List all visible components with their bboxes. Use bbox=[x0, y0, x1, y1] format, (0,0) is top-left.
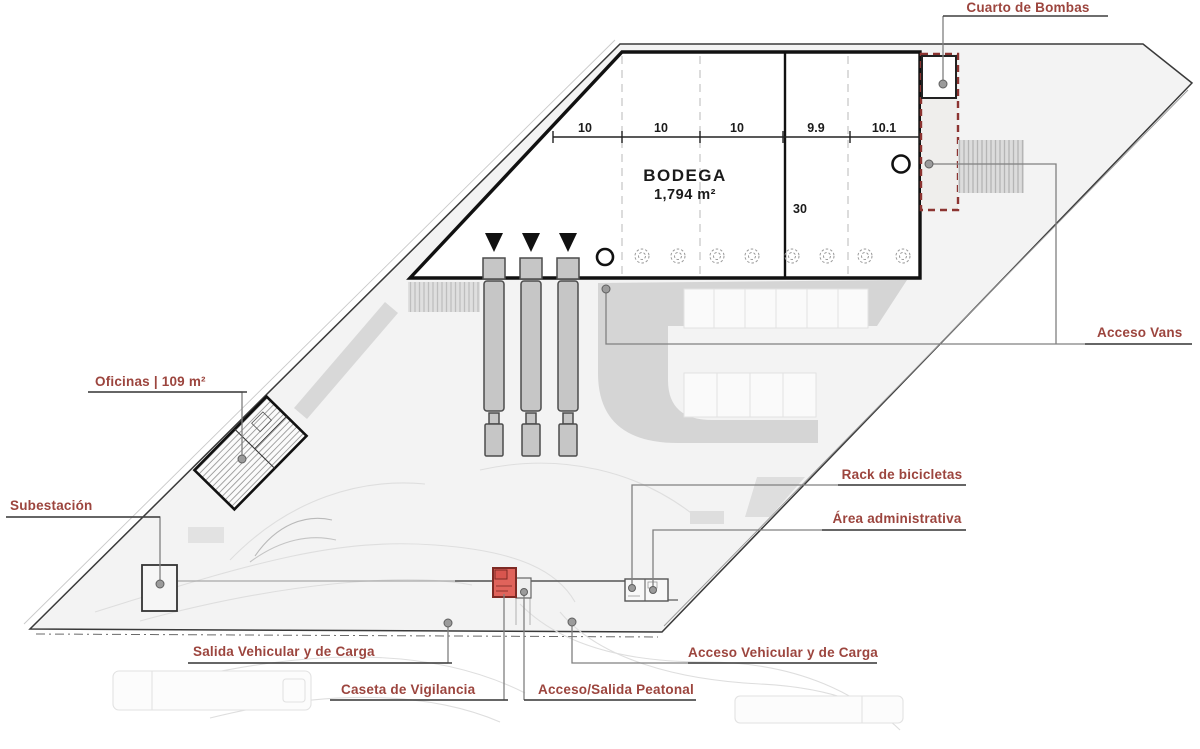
label-cuarto-de-bombas: Cuarto de Bombas bbox=[966, 0, 1089, 15]
label-salida-vehicular: Salida Vehicular y de Carga bbox=[193, 644, 375, 659]
ramp-hatch-left bbox=[408, 282, 480, 312]
label-acceso-peatonal: Acceso/Salida Peatonal bbox=[538, 682, 694, 697]
label-acceso-vans: Acceso Vans bbox=[1097, 325, 1183, 340]
warehouse-name: BODEGA bbox=[643, 166, 727, 186]
site-plan-canvas: Cuarto de Bombas Acceso Vans Oficinas | … bbox=[0, 0, 1200, 749]
warehouse-area: 1,794 m² bbox=[643, 187, 727, 203]
dim-bay-4: 9.9 bbox=[807, 121, 824, 135]
yard-patch-3 bbox=[188, 527, 224, 543]
label-rack-bicicletas: Rack de bicicletas bbox=[842, 467, 963, 482]
truck-outline-right bbox=[735, 696, 903, 723]
dim-bay-2: 10 bbox=[654, 121, 668, 135]
warehouse-building bbox=[410, 52, 920, 278]
caseta-building bbox=[493, 568, 516, 597]
label-oficinas: Oficinas | 109 m² bbox=[95, 374, 206, 389]
yard-patch-2 bbox=[690, 511, 724, 524]
stairs-hatch bbox=[958, 140, 1024, 193]
warehouse-title-block: BODEGA 1,794 m² bbox=[643, 166, 727, 203]
dim-depth: 30 bbox=[793, 202, 807, 216]
dim-bay-3: 10 bbox=[730, 121, 744, 135]
truck-outline-left bbox=[113, 671, 311, 710]
label-caseta-vigilancia: Caseta de Vigilancia bbox=[341, 682, 475, 697]
label-subestacion: Subestación bbox=[10, 498, 92, 513]
pump-room bbox=[922, 56, 956, 98]
dim-bay-5: 10.1 bbox=[872, 121, 896, 135]
label-acceso-vehicular: Acceso Vehicular y de Carga bbox=[688, 645, 878, 660]
offsite-vehicle-outlines bbox=[113, 671, 903, 723]
dock-trucks bbox=[483, 233, 579, 456]
dim-bay-1: 10 bbox=[578, 121, 592, 135]
label-area-administrativa: Área administrativa bbox=[832, 511, 961, 526]
